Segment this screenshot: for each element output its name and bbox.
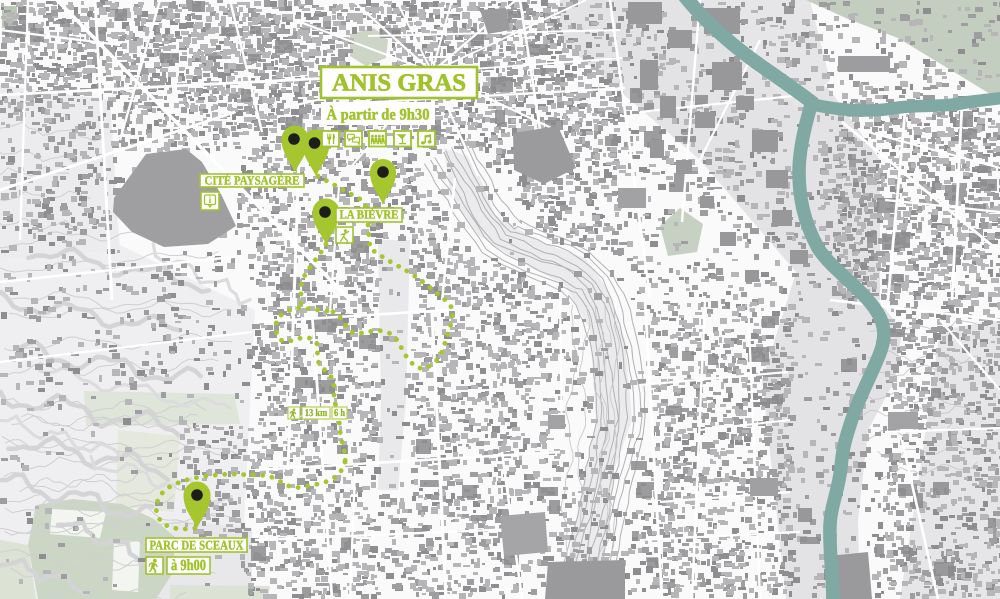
svg-text:À partir de 9h30: À partir de 9h30: [327, 106, 430, 124]
svg-text:i: i: [209, 196, 212, 206]
svg-text:à 9h00: à 9h00: [171, 557, 206, 574]
svg-text:13 km: 13 km: [305, 408, 328, 419]
svg-text:PARC DE SCEAUX: PARC DE SCEAUX: [150, 537, 244, 552]
svg-text:ANIS GRAS: ANIS GRAS: [332, 70, 466, 97]
svg-text:CITÉ PAYSAGÈRE: CITÉ PAYSAGÈRE: [205, 173, 300, 187]
svg-text:6 h: 6 h: [334, 408, 345, 419]
svg-text:LA BIÈVRE: LA BIÈVRE: [340, 208, 399, 222]
